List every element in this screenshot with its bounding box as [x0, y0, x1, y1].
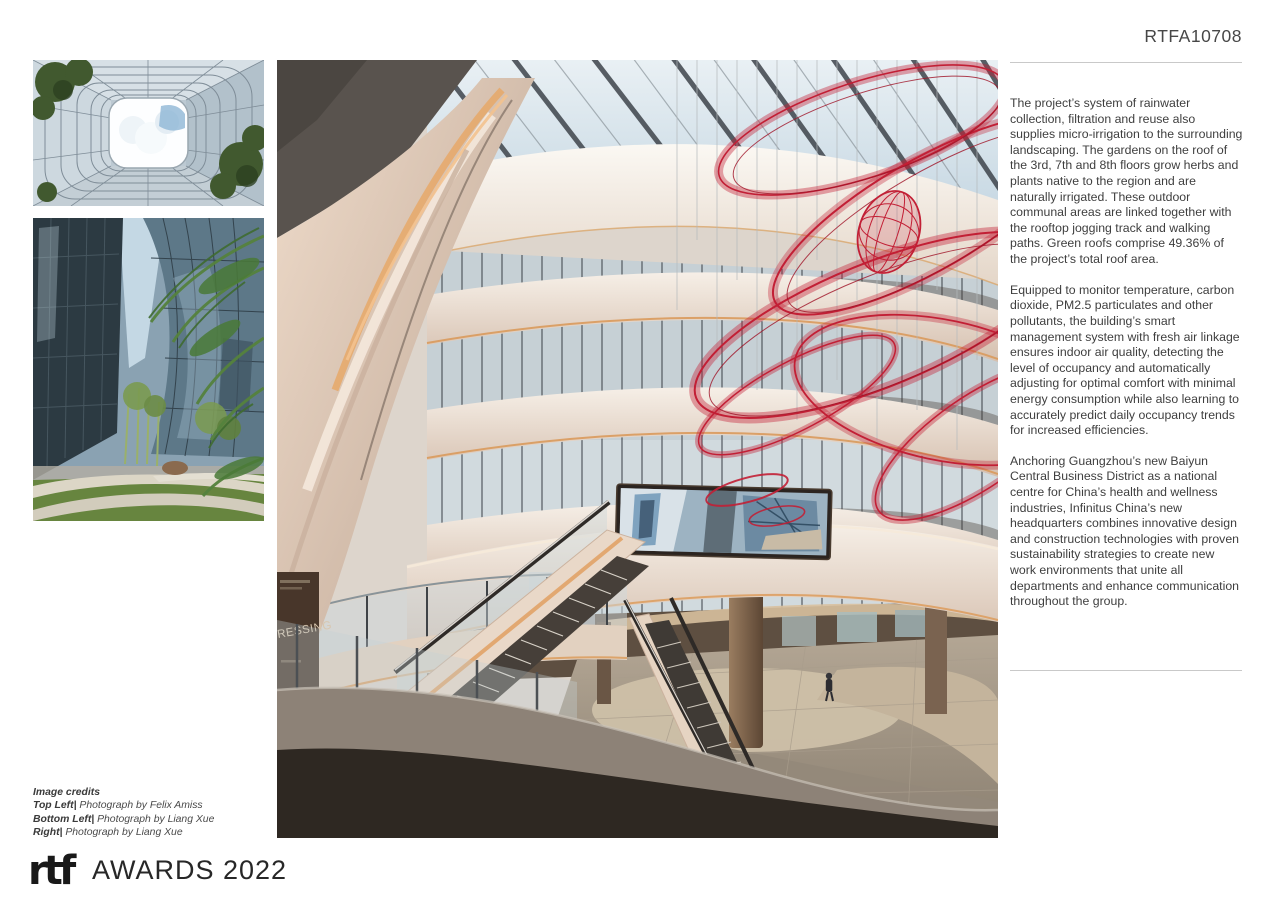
photo-top-left-graphic	[33, 60, 264, 206]
credits-heading: Image credits	[33, 786, 214, 799]
photo-top-left	[33, 60, 264, 206]
led-screen	[615, 484, 832, 560]
bottom-divider	[1010, 670, 1242, 671]
credit-line-right: Right| Photograph by Liang Xue	[33, 826, 214, 839]
image-credits: Image credits Top Left| Photograph by Fe…	[33, 786, 214, 839]
body-paragraph-1: The project’s system of rainwater collec…	[1010, 96, 1243, 268]
credit-line-top-left: Top Left| Photograph by Felix Amiss	[33, 799, 214, 812]
top-divider	[1010, 62, 1242, 63]
credit-line-bottom-left: Bottom Left| Photograph by Liang Xue	[33, 813, 214, 826]
awards-year-label: AWARDS 2022	[92, 855, 287, 886]
award-board-page: RTFA10708 The project’s system of rainwa…	[0, 0, 1273, 900]
body-paragraph-3: Anchoring Guangzhou’s new Baiyun Central…	[1010, 454, 1243, 610]
photo-bottom-left-graphic	[33, 218, 264, 521]
photo-main-graphic: RESSING	[277, 60, 998, 838]
photo-bottom-left	[33, 218, 264, 521]
rtf-awards-logo: rtf AWARDS 2022	[30, 850, 287, 890]
description-column: The project’s system of rainwater collec…	[1010, 96, 1243, 625]
submission-code: RTFA10708	[1144, 26, 1242, 47]
body-paragraph-2: Equipped to monitor temperature, carbon …	[1010, 283, 1243, 439]
rtf-logo-mark: rtf	[30, 850, 82, 890]
rtf-logo-text: rtf	[30, 850, 77, 890]
photo-main-atrium: RESSING	[277, 60, 998, 838]
